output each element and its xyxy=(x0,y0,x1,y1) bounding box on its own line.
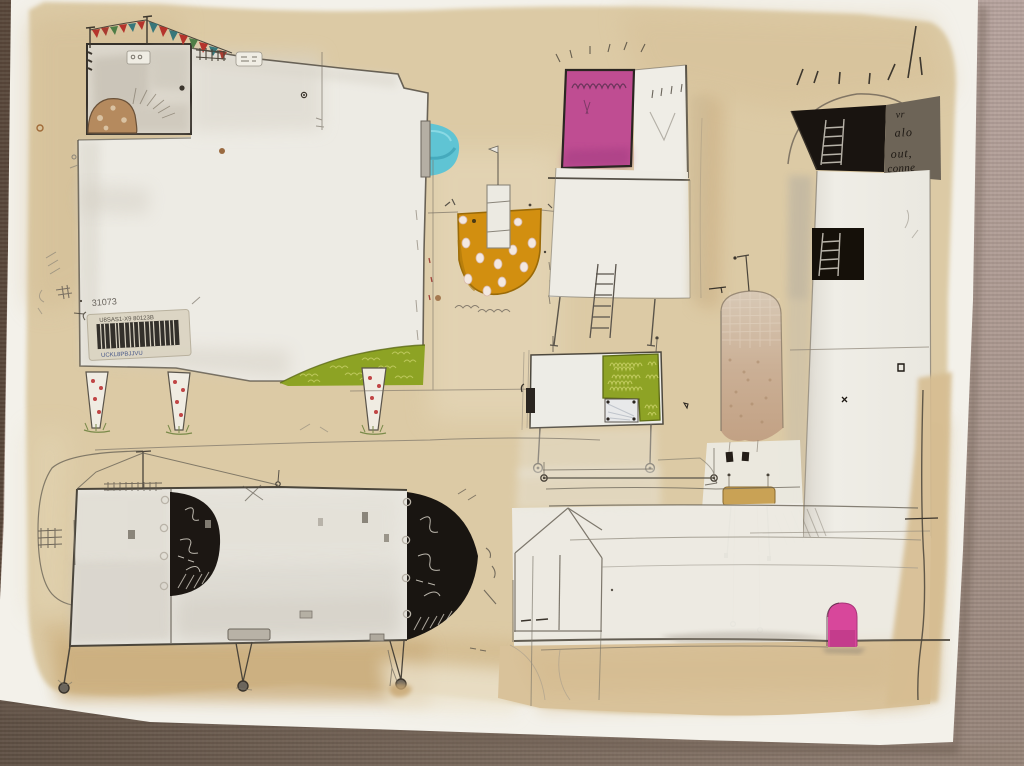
svg-text:31073: 31073 xyxy=(91,296,117,308)
svg-text:vr: vr xyxy=(895,109,905,120)
svg-text:out,: out, xyxy=(890,146,912,161)
svg-text:alo: alo xyxy=(894,125,913,140)
